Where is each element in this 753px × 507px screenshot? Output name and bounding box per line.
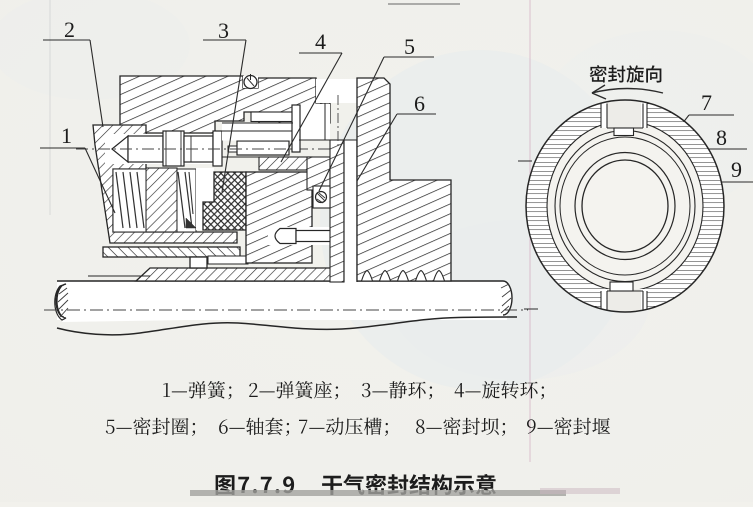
svg-text:3: 3 — [218, 18, 229, 43]
svg-text:4: 4 — [315, 29, 326, 54]
svg-text:5: 5 — [404, 34, 415, 59]
svg-text:7: 7 — [701, 90, 712, 115]
svg-text:1: 1 — [61, 123, 72, 148]
svg-text:6: 6 — [414, 91, 425, 116]
svg-text:8: 8 — [716, 125, 727, 150]
svg-text:2: 2 — [64, 17, 75, 42]
svg-text:9: 9 — [731, 157, 742, 182]
